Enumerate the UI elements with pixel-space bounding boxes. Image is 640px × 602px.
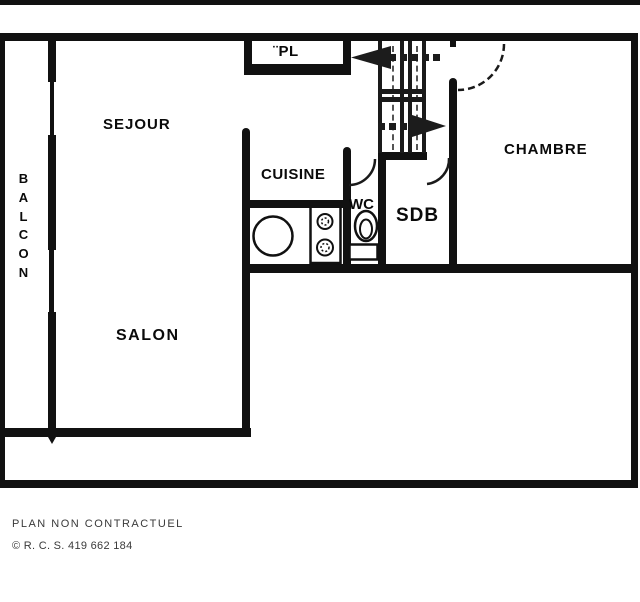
room-label-sejour: SEJOUR [103,117,171,132]
wall-rooms-bottom [244,264,638,273]
disclaimer-text: PLAN NON CONTRACTUEL [12,518,184,531]
wall-sejour-cuisine [242,128,250,437]
chambre-door-jamb [450,41,456,47]
room-label-sdb: SDB [396,206,439,225]
toilet-cistern [350,245,378,260]
hob-icon [311,204,341,263]
room-label-balcon: BALCON [16,170,31,283]
balcony-window-lower [49,250,54,312]
stair-landing-line-1 [378,89,426,94]
wall-balcony-tip [48,437,56,444]
burner-icon-top-inner [322,218,329,225]
rcs-text: © R. C. S. 419 662 184 [12,540,133,553]
room-label-salon: SALON [116,328,180,344]
wall-chambre-left [449,78,457,272]
top-border-bar [0,0,640,5]
burner-icon-top [318,214,333,229]
sink-icon [254,217,293,256]
wall-balcony-upper [48,41,56,82]
wall-salon-bottom [0,428,251,437]
wall-outer-right [631,33,638,488]
burner-icon-bottom [317,240,333,256]
wall-outer-bottom [0,480,638,488]
room-label-pl: ¨PL [273,44,299,59]
burner-icon-bottom-inner [321,244,329,252]
wall-kitchen-counter [250,200,343,208]
stair-arrow-right-shaft [378,123,411,130]
wall-outer-top [0,33,638,41]
wall-closet-bottom [244,64,351,75]
stair-landing-line-2 [378,97,426,102]
toilet-icon [355,211,377,241]
stair-arrow-right-icon [409,114,446,138]
wall-balcony-mid [48,135,56,250]
wall-sdb-left [378,152,386,272]
room-label-cuisine: CUISINE [261,167,325,182]
fixtures-layer [0,0,640,602]
chambre-door-arc [458,44,504,90]
room-label-chambre: CHAMBRE [504,142,588,157]
stair-arrow-left-icon [351,46,391,69]
wall-balcony-lower [48,312,56,437]
floor-plan: SEJOUR BALCON ¨PL CUISINE WC SDB CHAMBRE… [0,0,640,602]
wall-sdb-top [378,152,427,160]
wc-door-arc [349,159,375,185]
sdb-door-arc [427,158,449,184]
toilet-icon-inner [360,220,372,239]
wall-outer-left [0,33,5,488]
balcony-window-upper [50,82,54,135]
stair-arrow-left-shaft [389,54,443,61]
room-label-wc: WC [349,197,374,212]
